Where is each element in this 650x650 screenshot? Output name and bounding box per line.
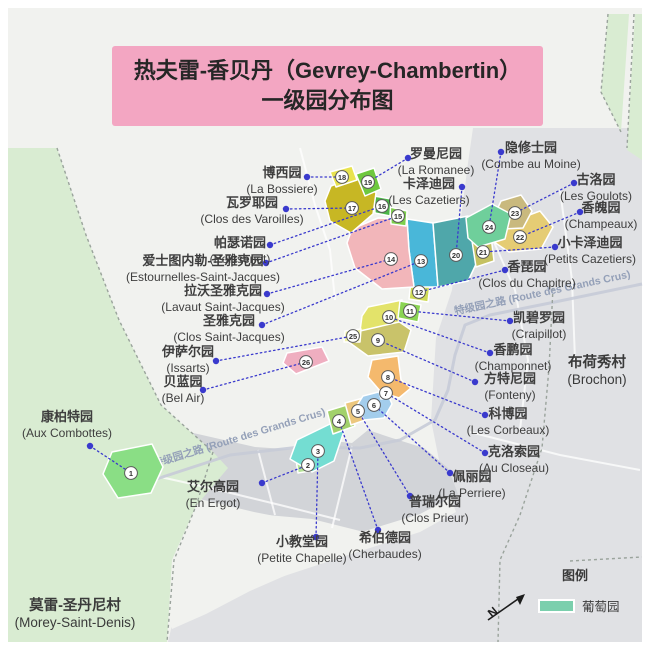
- label-dot-10: [487, 350, 493, 356]
- plot-marker-number-5: 5: [356, 407, 360, 416]
- plot-marker-number-14: 14: [387, 255, 396, 264]
- plot-marker-number-19: 19: [364, 178, 372, 187]
- village-label-morey: 莫雷-圣丹尼村(Morey-Saint-Denis): [15, 596, 136, 630]
- label-dot-20: [459, 184, 465, 190]
- title-banner: 热夫雷-香贝丹（Gevrey-Chambertin） 一级园分布图: [112, 46, 543, 126]
- label-dot-13: [259, 322, 265, 328]
- label-dot-14: [264, 291, 270, 297]
- plot-marker-number-13: 13: [417, 257, 425, 266]
- plot-marker-number-9: 9: [376, 336, 380, 345]
- title-line1: 热夫雷-香贝丹（Gevrey-Chambertin）: [134, 56, 522, 86]
- plot-marker-number-26: 26: [302, 358, 310, 367]
- plot-marker-number-17: 17: [348, 204, 356, 213]
- plot-marker-number-8: 8: [386, 373, 390, 382]
- label-dot-16: [267, 242, 273, 248]
- plot-marker-number-18: 18: [338, 173, 346, 182]
- label-dot-1: [87, 443, 93, 449]
- plot-marker-number-15: 15: [394, 212, 402, 221]
- plot-marker-number-11: 11: [406, 307, 414, 316]
- plot-marker-number-7: 7: [384, 389, 388, 398]
- plot-marker-number-23: 23: [511, 209, 519, 218]
- legend-vineyard-swatch: [539, 600, 574, 612]
- legend-vineyard-label: 葡萄园: [582, 600, 620, 614]
- plot-marker-number-2: 2: [306, 461, 310, 470]
- map-stage: 特级园之路 (Route des Grands Crus)特级园之路 (Rout…: [0, 0, 650, 650]
- label-dot-8: [482, 412, 488, 418]
- plot-marker-number-24: 24: [485, 223, 494, 232]
- plot-marker-number-12: 12: [415, 288, 423, 297]
- plot-marker-number-1: 1: [129, 469, 133, 478]
- label-dot-2: [259, 480, 265, 486]
- plot-marker-number-16: 16: [378, 202, 386, 211]
- plot-marker-number-25: 25: [349, 332, 357, 341]
- title-line2: 一级园分布图: [261, 86, 393, 116]
- village-label-brochon: 布荷秀村(Brochon): [567, 353, 626, 387]
- label-dot-9: [472, 379, 478, 385]
- plot-marker-number-6: 6: [372, 401, 376, 410]
- plot-marker-number-22: 22: [516, 233, 524, 242]
- label-dot-18: [304, 174, 310, 180]
- plot-marker-number-21: 21: [479, 248, 487, 257]
- label-dot-24: [498, 149, 504, 155]
- plot-marker-number-10: 10: [385, 313, 393, 322]
- plot-marker-number-20: 20: [452, 251, 460, 260]
- legend-title: 图例: [562, 568, 588, 583]
- plot-marker-number-3: 3: [316, 447, 320, 456]
